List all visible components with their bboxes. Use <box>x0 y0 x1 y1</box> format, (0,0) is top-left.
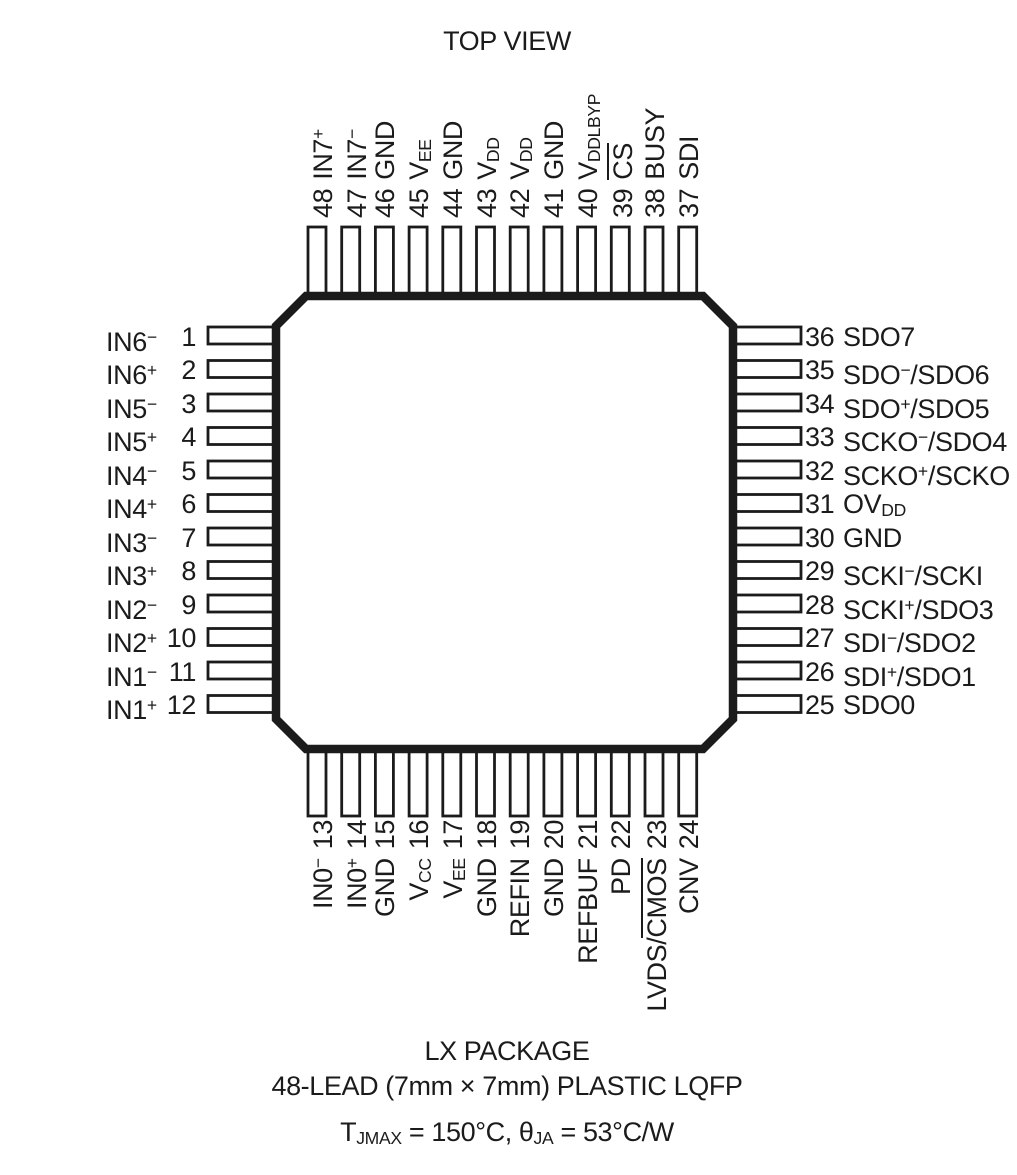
pin-label-27: 27SDI−/SDO2 <box>805 624 976 657</box>
superscript: + <box>147 561 157 581</box>
pin-lead-23 <box>645 747 663 816</box>
pin-lead-1 <box>208 327 279 344</box>
pin-name: SDO+/SDO5 <box>843 390 989 423</box>
pin-lead-46 <box>375 227 393 298</box>
pin-name: SCKI−/SCKI <box>843 557 983 590</box>
pin-lead-19 <box>510 747 528 816</box>
pin-number: 38 <box>640 189 670 218</box>
pin-name: SDO0 <box>843 691 915 719</box>
superscript: + <box>147 695 157 715</box>
pin-lead-30 <box>730 528 801 545</box>
pin-number: 15 <box>370 820 400 849</box>
pin-lead-4 <box>208 428 279 445</box>
superscript: − <box>918 427 928 447</box>
pin-label-2: IN6+2 <box>106 356 196 389</box>
package-name: LX PACKAGE <box>0 1037 1014 1065</box>
pin-lead-39 <box>611 227 629 298</box>
pin-name: OVDD <box>843 490 906 524</box>
pin-label-4: IN5+4 <box>106 423 196 456</box>
pin-label-44: 44GND <box>439 121 467 218</box>
pin-label-38: 38BUSY <box>641 108 669 218</box>
pin-label-12: IN1+12 <box>106 691 196 724</box>
superscript: + <box>147 628 157 648</box>
superscript: + <box>342 858 362 868</box>
pin-lead-9 <box>208 595 279 612</box>
pin-label-29: 29SCKI−/SCKI <box>805 557 983 590</box>
pin-number: 48 <box>308 189 338 218</box>
pin-name: IN1− <box>106 658 157 691</box>
pin-number: 28 <box>805 591 835 624</box>
pin-number: 47 <box>342 189 372 218</box>
pin-lead-2 <box>208 361 279 378</box>
superscript: − <box>342 129 362 139</box>
superscript: − <box>308 858 328 868</box>
superscript: − <box>147 461 157 481</box>
pin-label-46: 46GND <box>371 121 399 218</box>
pin-name: VEE <box>404 139 434 179</box>
superscript: − <box>900 360 910 380</box>
superscript: − <box>147 528 157 548</box>
pin-lead-25 <box>730 696 801 713</box>
pin-lead-3 <box>208 394 279 411</box>
pin-number: 37 <box>674 189 704 218</box>
pin-label-41: 41GND <box>540 121 568 218</box>
pin-lead-27 <box>730 629 801 646</box>
pin-number: 31 <box>805 490 835 524</box>
pin-name: LVDS/CMOS <box>642 858 672 1011</box>
pin-label-5: IN4−5 <box>106 457 196 490</box>
overline: CMOS <box>641 858 671 937</box>
superscript: + <box>308 129 328 139</box>
pin-label-25: 25SDO0 <box>805 691 915 719</box>
pin-name: SDO−/SDO6 <box>843 356 989 389</box>
pin-number: 35 <box>805 356 835 389</box>
pin-number: 14 <box>342 820 372 849</box>
superscript: − <box>887 628 897 648</box>
pin-number: 27 <box>805 624 835 657</box>
pin-lead-28 <box>730 595 801 612</box>
pin-number: 33 <box>805 423 835 456</box>
pin-lead-48 <box>308 227 326 298</box>
pin-lead-29 <box>730 562 801 579</box>
pin-lead-38 <box>645 227 663 298</box>
pin-label-8: IN3+8 <box>106 557 196 590</box>
pin-lead-14 <box>342 747 360 816</box>
pin-number: 11 <box>169 658 196 691</box>
subscript: EE <box>449 858 469 881</box>
pin-number: 7 <box>181 524 196 557</box>
pin-label-6: IN4+6 <box>106 490 196 523</box>
pin-name: IN4− <box>106 457 157 490</box>
pin-lead-35 <box>730 361 801 378</box>
pin-name: SCKI+/SDO3 <box>843 591 993 624</box>
pin-name: IN5+ <box>106 423 157 456</box>
pin-name: IN2− <box>106 591 157 624</box>
pin-number: 8 <box>181 557 196 590</box>
pin-number: 19 <box>505 820 535 849</box>
pin-name: SDI−/SDO2 <box>843 624 976 657</box>
pin-name: IN1+ <box>106 691 157 724</box>
subscript: JMAX <box>356 1128 402 1148</box>
pin-name: SDO7 <box>843 323 915 351</box>
superscript: − <box>147 394 157 414</box>
pin-lead-22 <box>611 747 629 816</box>
superscript: − <box>147 327 157 347</box>
pin-lead-37 <box>679 227 697 298</box>
pin-label-42: 42VDD <box>506 137 534 218</box>
pin-name: GND <box>370 121 400 180</box>
pin-name: BUSY <box>640 108 670 180</box>
pin-label-26: 26SDI+/SDO1 <box>805 658 976 691</box>
pin-lead-36 <box>730 327 801 344</box>
pin-name: SCKO+/SCKO <box>843 457 1010 490</box>
overline: CS <box>607 143 637 180</box>
pin-number: 40 <box>573 189 603 218</box>
pin-name: GND <box>438 121 468 180</box>
pin-lead-17 <box>443 747 461 816</box>
pin-name: SDI+/SDO1 <box>843 658 976 691</box>
pin-name: GND <box>539 121 569 180</box>
pin-number: 2 <box>181 356 196 389</box>
pin-lead-12 <box>208 696 279 713</box>
pin-lead-44 <box>443 227 461 298</box>
pin-number: 30 <box>805 524 835 552</box>
pin-number: 23 <box>642 820 672 849</box>
pin-number: 43 <box>472 189 502 218</box>
pin-lead-40 <box>578 227 596 298</box>
pin-lead-18 <box>477 747 495 816</box>
pin-number: 4 <box>181 423 196 456</box>
pin-name: GND <box>370 858 400 917</box>
pin-name: REFBUF <box>573 858 603 964</box>
pin-lead-16 <box>409 747 427 816</box>
pin-name: IN2+ <box>106 624 157 657</box>
superscript: + <box>147 494 157 514</box>
pin-name: IN3+ <box>106 557 157 590</box>
pin-number: 5 <box>181 457 196 490</box>
pin-name: VCC <box>404 858 434 900</box>
subscript: CC <box>415 858 435 883</box>
pin-number: 10 <box>167 624 196 657</box>
pin-name: VDD <box>505 137 535 179</box>
pin-label-34: 34SDO+/SDO5 <box>805 390 989 423</box>
pin-number: 34 <box>805 390 835 423</box>
pin-lead-13 <box>308 747 326 816</box>
pin-label-30: 30GND <box>805 524 902 552</box>
pin-label-36: 36SDO7 <box>805 323 915 351</box>
pin-lead-7 <box>208 528 279 545</box>
pin-lead-5 <box>208 461 279 478</box>
pin-label-33: 33SCKO−/SDO4 <box>805 423 1007 456</box>
pin-number: 41 <box>539 189 569 218</box>
pin-lead-10 <box>208 629 279 646</box>
pin-lead-21 <box>578 747 596 816</box>
pin-number: 13 <box>308 820 338 849</box>
pin-name: IN7− <box>342 129 372 180</box>
pin-number: 12 <box>167 691 196 724</box>
pin-number: 26 <box>805 658 835 691</box>
pin-lead-31 <box>730 495 801 512</box>
pin-label-35: 35SDO−/SDO6 <box>805 356 989 389</box>
pin-lead-45 <box>409 227 427 298</box>
superscript: + <box>918 461 928 481</box>
pin-lead-11 <box>208 662 279 679</box>
subscript: DDLBYP <box>584 94 604 162</box>
pin-name: VDDLBYP <box>573 94 603 180</box>
pin-label-7: IN3−7 <box>106 524 196 557</box>
subscript: DD <box>482 137 502 162</box>
pin-label-31: 31OVDD <box>805 490 906 524</box>
pin-label-11: IN1−11 <box>106 658 196 691</box>
pin-lead-32 <box>730 461 801 478</box>
pin-number: 42 <box>505 189 535 218</box>
superscript: − <box>904 561 914 581</box>
pin-label-43: 43VDD <box>473 137 501 218</box>
pin-number: 32 <box>805 457 835 490</box>
package-description: 48-LEAD (7mm × 7mm) PLASTIC LQFP <box>0 1072 1014 1100</box>
pin-name: IN3− <box>106 524 157 557</box>
pin-lead-8 <box>208 562 279 579</box>
pin-name: CNV <box>674 858 704 914</box>
pin-label-39: 39CS <box>607 143 635 218</box>
pin-lead-26 <box>730 662 801 679</box>
pin-name: IN0− <box>308 858 338 909</box>
pin-label-28: 28SCKI+/SDO3 <box>805 591 993 624</box>
subscript: JA <box>534 1128 554 1148</box>
pin-lead-15 <box>375 747 393 816</box>
pin-name: SCKO−/SDO4 <box>843 423 1007 456</box>
superscript: + <box>887 662 897 682</box>
superscript: + <box>147 427 157 447</box>
pin-number: 17 <box>438 820 468 849</box>
pin-name: GND <box>843 524 902 552</box>
pin-number: 18 <box>472 820 502 849</box>
pin-name: IN0+ <box>342 858 372 909</box>
subscript: DD <box>516 137 536 162</box>
pin-lead-20 <box>544 747 562 816</box>
pin-number: 46 <box>370 189 400 218</box>
pin-number: 25 <box>805 691 835 719</box>
pin-number: 39 <box>608 189 638 218</box>
pin-number: 36 <box>805 323 835 351</box>
pin-name: IN4+ <box>106 490 157 523</box>
pin-number: 20 <box>539 820 569 849</box>
pin-lead-47 <box>342 227 360 298</box>
pinout-page: TOP VIEW 48IN7+47IN7−46GND45VEE44GND43VD… <box>0 0 1017 1175</box>
pin-name: CS <box>608 143 638 180</box>
pin-label-48: 48IN7+ <box>304 129 332 218</box>
pin-number: 9 <box>181 591 196 624</box>
pin-number: 29 <box>805 557 835 590</box>
pin-number: 1 <box>181 323 196 356</box>
pin-name: VEE <box>438 858 468 898</box>
pin-name: PD <box>606 858 636 895</box>
pin-name: IN7+ <box>308 129 338 180</box>
pin-label-10: IN2+10 <box>106 624 196 657</box>
chip-body <box>276 296 733 749</box>
pin-number: 21 <box>573 820 603 849</box>
pin-number: 16 <box>404 820 434 849</box>
pin-label-32: 32SCKO+/SCKO <box>805 457 1010 490</box>
pin-label-45: 45VEE <box>405 139 433 218</box>
pin-name: IN6+ <box>106 356 157 389</box>
pin-name: GND <box>539 858 569 917</box>
pin-label-3: IN5−3 <box>106 390 196 423</box>
pin-name: REFIN <box>505 858 535 937</box>
pin-number: 44 <box>438 189 468 218</box>
pin-lead-24 <box>679 747 697 816</box>
pin-name: SDI <box>674 136 704 180</box>
pin-lead-42 <box>510 227 528 298</box>
subscript: DD <box>881 500 906 520</box>
thermal-specs: TJMAX = 150°C, θJA = 53°C/W <box>0 1118 1014 1152</box>
pin-label-37: 37SDI <box>675 136 703 218</box>
pin-name: GND <box>472 858 502 917</box>
superscript: − <box>147 595 157 615</box>
subscript: EE <box>415 139 435 162</box>
pin-number: 3 <box>181 390 196 423</box>
superscript: + <box>900 394 910 414</box>
pin-number: 6 <box>181 490 196 523</box>
page-title: TOP VIEW <box>0 27 1014 55</box>
superscript: + <box>904 595 914 615</box>
superscript: + <box>147 360 157 380</box>
pin-number: 22 <box>606 820 636 849</box>
pin-lead-43 <box>477 227 495 298</box>
pin-label-1: IN6−1 <box>106 323 196 356</box>
pin-name: IN6− <box>106 323 157 356</box>
pin-label-47: 47IN7− <box>338 129 366 218</box>
pin-label-40: 40VDDLBYP <box>574 94 602 218</box>
pin-lead-41 <box>544 227 562 298</box>
pin-name: VDD <box>472 137 502 179</box>
pin-name: IN5− <box>106 390 157 423</box>
pin-label-9: IN2−9 <box>106 591 196 624</box>
superscript: − <box>147 662 157 682</box>
pin-lead-33 <box>730 428 801 445</box>
pin-number: 24 <box>674 820 704 849</box>
pin-number: 45 <box>404 189 434 218</box>
pin-lead-34 <box>730 394 801 411</box>
pin-lead-6 <box>208 495 279 512</box>
